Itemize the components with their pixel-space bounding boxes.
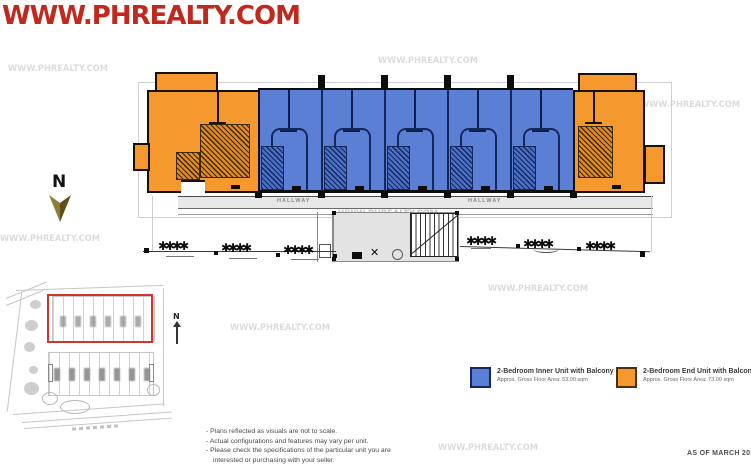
- site-blob: [30, 300, 41, 309]
- site-blob: [29, 366, 38, 374]
- unit-wall: [209, 122, 226, 124]
- canopy-edge: [152, 196, 153, 252]
- balcony-post: [318, 75, 325, 90]
- bathroom-hatch: [387, 146, 410, 190]
- site-north-arrow: N: [170, 312, 186, 348]
- brand-watermark-tile: WWW.PHREALTY.COM: [8, 64, 108, 74]
- shrub-shadow: [229, 258, 257, 259]
- note-line: interested or purchasing with your selle…: [213, 457, 335, 464]
- unit-divider-wall: [447, 90, 449, 191]
- planter-mark: [392, 249, 403, 260]
- north-arrow-icon: [46, 192, 74, 224]
- tree-group: ✱✱✱✱: [283, 243, 311, 257]
- bathroom-hatch: [324, 146, 347, 190]
- door-mark: [418, 186, 427, 190]
- balcony-post: [381, 75, 388, 90]
- door-mark: [507, 193, 514, 198]
- bathroom-hatch: [578, 126, 613, 178]
- shrub-shadow: [166, 256, 194, 257]
- end-unit-right-bump: [644, 145, 665, 184]
- site-blob: [25, 320, 38, 331]
- entry-notch: [181, 180, 205, 194]
- legend-sublabel: Approx. Gross Floor Area: 53.00 sqm: [497, 377, 588, 383]
- note-line: - Please check the specifications of the…: [206, 447, 391, 454]
- shrub-shadow: [471, 248, 491, 249]
- brand-watermark-header: WWW.PHREALTY.COM: [2, 1, 300, 31]
- site-boundary: [163, 288, 164, 406]
- unit-wall: [540, 90, 542, 132]
- column-mark: [455, 211, 459, 215]
- bathroom-hatch: [261, 146, 284, 190]
- furniture-mark: [352, 252, 362, 259]
- legend-swatch-inner-unit: [470, 367, 491, 388]
- unit-wall: [288, 90, 290, 132]
- shrub-dot: [333, 254, 337, 258]
- balcony-post: [444, 75, 451, 90]
- note-line: - Actual configurations and features may…: [206, 438, 368, 445]
- shrub-dot: [276, 253, 280, 257]
- brand-watermark-tile: WWW.PHREALTY.COM: [230, 323, 330, 333]
- current-floor-highlight: [47, 294, 153, 343]
- north-label: N: [173, 312, 180, 321]
- legend-sublabel: Approx. Gross Floor Area: 73.00 sqm: [643, 377, 734, 383]
- site-building-end: [149, 364, 154, 382]
- door-mark: [444, 193, 451, 198]
- north-label: N: [52, 172, 66, 192]
- unit-divider-wall: [384, 90, 386, 191]
- site-ring: [147, 384, 160, 396]
- tree-group: ✱✱✱✱: [585, 239, 613, 253]
- hallway-label: HALLWAY: [277, 198, 310, 204]
- tree-group: ✱✱✱✱: [158, 239, 186, 253]
- tree-group: ✱✱✱✱: [221, 241, 249, 255]
- shrub-dot: [144, 248, 149, 253]
- table-mark: ✕: [370, 248, 382, 260]
- door-mark: [381, 193, 388, 198]
- column-mark: [455, 257, 459, 261]
- note-line: - Plans reflected as visuals are not to …: [206, 428, 337, 435]
- legend: 2-Bedroom Inner Unit with Balcony Approx…: [468, 365, 751, 391]
- door-mark: [481, 186, 490, 190]
- door-mark: [355, 186, 364, 190]
- column-mark: [332, 211, 336, 215]
- unit-wall: [414, 90, 416, 132]
- shrub-dot: [640, 251, 645, 257]
- site-road: [22, 412, 172, 423]
- brand-watermark-tile: WWW.PHREALTY.COM: [488, 284, 588, 294]
- site-blob: [24, 382, 39, 395]
- site-ring: [42, 392, 58, 405]
- site-ring: [60, 400, 90, 414]
- unit-divider-wall: [510, 90, 512, 191]
- site-building-end: [48, 364, 53, 382]
- end-unit-left-bump: [133, 143, 150, 171]
- door-mark: [255, 193, 262, 198]
- bathroom-hatch: [200, 124, 250, 178]
- bathroom-hatch: [176, 152, 200, 180]
- site-blob: [24, 342, 35, 352]
- site-boundary: [7, 292, 23, 411]
- shrub-dot: [577, 247, 581, 251]
- tree-group: ✱✱✱✱: [466, 234, 494, 248]
- balcony-post: [507, 75, 514, 90]
- canopy-edge: [651, 196, 652, 252]
- door-mark: [570, 193, 577, 198]
- legend-label: 2-Bedroom Inner Unit with Balcony: [497, 368, 614, 375]
- legend-swatch-end-unit: [616, 367, 637, 388]
- door-mark: [544, 186, 553, 190]
- unit-wall: [593, 92, 595, 124]
- unit-wall: [585, 122, 602, 124]
- door-mark: [292, 186, 301, 190]
- floor-plan-page: WWW.PHREALTY.COM WWW.PHREALTY.COM WWW.PH…: [0, 0, 751, 469]
- shrub-arc: [533, 245, 559, 253]
- shrub-shadow: [291, 259, 319, 260]
- shrub-dot: [516, 244, 520, 248]
- hallway-strip: [178, 196, 653, 209]
- disclaimer-notes: - Plans reflected as visuals are not to …: [206, 428, 456, 468]
- brand-watermark-tile: WWW.PHREALTY.COM: [0, 234, 100, 244]
- unit-wall: [351, 90, 353, 132]
- door-mark: [231, 185, 240, 189]
- site-street-text-mark: [72, 424, 118, 430]
- bathroom-hatch: [513, 146, 536, 190]
- bathroom-hatch: [450, 146, 473, 190]
- legend-label: 2-Bedroom End Unit with Balcony: [643, 368, 751, 375]
- unit-divider-wall: [321, 90, 323, 191]
- unit-wall: [477, 90, 479, 132]
- door-mark: [612, 185, 621, 189]
- site-building-detail: [54, 368, 150, 381]
- unit-wall: [217, 92, 219, 124]
- hallway-label: HALLWAY: [468, 198, 501, 204]
- end-unit-left: [147, 90, 260, 193]
- north-arrow: N: [40, 172, 80, 227]
- door-mark: [318, 193, 325, 198]
- as-of-date: AS OF MARCH 2015: [687, 450, 751, 457]
- north-needle-tip: [173, 321, 181, 327]
- end-unit-right: [573, 90, 645, 193]
- shrub-dot: [214, 251, 218, 255]
- brand-watermark-tile: WWW.PHREALTY.COM: [378, 56, 478, 66]
